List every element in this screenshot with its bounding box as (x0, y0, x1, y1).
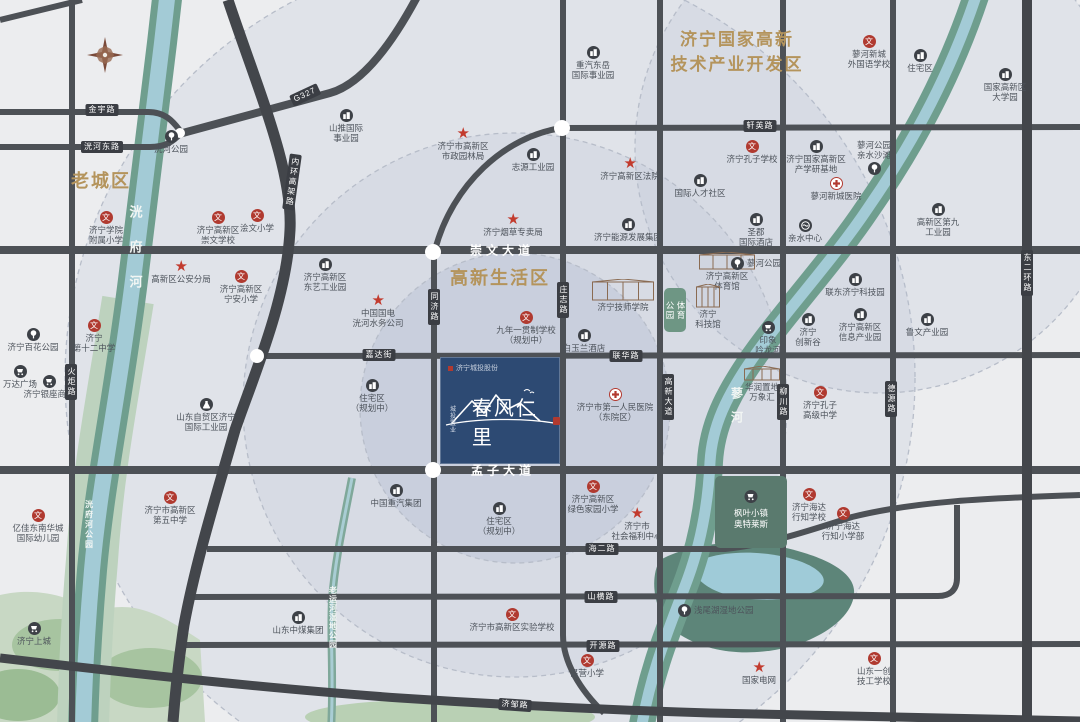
road-badge: 济邹路 (498, 698, 532, 712)
poi-label: 济宁烟草专卖局 (483, 227, 543, 237)
poi-label: 国际人才社区 (674, 188, 725, 198)
road-badge: 开源路 (587, 640, 620, 652)
district-label: 济宁国家高新技术产业开发区 (671, 25, 804, 75)
brand-name: 春风仁里 (472, 392, 549, 450)
school-icon: 文 (212, 211, 225, 224)
poi-label: 济宁第十二中学 (73, 333, 116, 353)
poi-label: 山东自贸区济宁国际工业园 (176, 412, 236, 432)
poi-label: 济宁海达行知学校 (792, 502, 826, 522)
road-badge: 火炬路 (65, 364, 77, 400)
road-badge: 柳川路 (777, 384, 789, 420)
poi-label: 住宅区 (907, 63, 933, 73)
landmark-sketch-icon (696, 284, 720, 308)
poi-label: 蓼河公园亲水沙滩 (857, 140, 891, 160)
poi-label: 万达广场 (3, 379, 37, 389)
poi-label: 国家高新区大学园 (984, 82, 1027, 102)
building-icon (854, 308, 867, 321)
star-icon: ★ (175, 260, 188, 273)
road-badge: 东二环路 (1021, 250, 1033, 296)
brand-seal-icon (553, 417, 560, 425)
poi-label: 鲁文产业园 (906, 327, 949, 337)
river-label: 洸府河 (126, 205, 145, 310)
building-icon (366, 379, 379, 392)
poi-label: 华润置地万象汇 (745, 382, 779, 402)
poi-label: 济宁海达行知小学部 (822, 521, 865, 541)
road-name-label: 崇文大道 (470, 242, 534, 259)
poi-label: 亲水中心 (788, 233, 822, 243)
park-icon (731, 257, 744, 270)
school-icon: 文 (803, 488, 816, 501)
road-kaiyuan (183, 644, 1080, 645)
building-icon (527, 148, 540, 161)
river-label: 老运河湿地公园 (328, 586, 339, 649)
poi-label: 济宁市社会福利中心 (611, 521, 662, 541)
school-icon: 文 (587, 480, 600, 493)
road-badge: 嘉达街 (363, 349, 396, 361)
jining-location-map: 济宁城投股份 城投 置业 · 春风仁里 山推国际事业园洸河公园文济宁学院附属小学… (0, 0, 1080, 722)
poi-label: 济宁学院附属小学 (89, 225, 123, 245)
poi-label: 济宁孔子高级中学 (803, 400, 837, 420)
poi-label: 济宁高新区绿色家园小学 (567, 494, 618, 514)
poi-label: 济宁市第一人民医院（东院区） (577, 402, 654, 422)
green-facility-box: 枫叶小镇奥特莱斯 (715, 476, 787, 548)
star-icon: ★ (631, 507, 644, 520)
plot-tag-label: 济宁城投股份 (456, 363, 498, 373)
poi-label: 蓼河新城外国语学校 (848, 49, 891, 69)
star-icon: ★ (372, 294, 385, 307)
building-icon (694, 174, 707, 187)
building-icon (750, 213, 763, 226)
building-icon (587, 46, 600, 59)
poi-label: 济宁高新区宁安小学 (220, 284, 263, 304)
poi-label: 高新区公安分局 (151, 274, 211, 284)
poi-label: 圣郡国际酒店 (739, 227, 773, 247)
poi-label: 济宁国家高新区产学研基地 (786, 154, 846, 174)
road-badge: 庄志路 (557, 282, 569, 318)
poi-label: 济宁高新区法院 (600, 171, 660, 181)
project-brand-row: 城投 置业 · 春风仁里 (450, 392, 560, 450)
cart-icon (43, 375, 56, 388)
poi-label: 济宁孔子学校 (726, 154, 777, 164)
park-icon (165, 130, 178, 143)
road-xuanying (562, 127, 1080, 128)
road-badge: 联华路 (610, 350, 643, 362)
poi-label: 济宁高新区信息产业园 (839, 322, 882, 342)
poi-label: 白玉兰酒店 (563, 343, 606, 353)
landmark-sketch-icon (744, 366, 780, 381)
poi-label: 印象吟龙河 (755, 335, 781, 355)
center-icon (799, 219, 812, 232)
cart-icon (28, 622, 41, 635)
project-plot-tag: 济宁城投股份 (448, 363, 498, 373)
district-label: 高新生活区 (450, 264, 550, 290)
poi-label: 浍文小学 (240, 223, 274, 233)
road-badge: 同济路 (428, 289, 440, 325)
road-badge: 洸河东路 (81, 141, 123, 153)
road-badge: 德源路 (885, 381, 897, 417)
star-icon: ★ (753, 661, 766, 674)
school-icon: 文 (520, 311, 533, 324)
park-icon (868, 162, 881, 175)
school-icon: 文 (581, 654, 594, 667)
poi-label: 重汽东岳国际事业园 (572, 60, 615, 80)
star-icon: ★ (507, 213, 520, 226)
school-icon: 文 (88, 319, 101, 332)
road-badge: 金宇路 (86, 104, 119, 116)
building-icon (340, 109, 353, 122)
poi-label: 中国国电洸河水务公司 (352, 308, 403, 328)
poi-label: 蓼河新城医院 (810, 191, 861, 201)
river-label: 洸府河公园 (84, 500, 95, 550)
cart-icon (745, 490, 758, 508)
building-icon (578, 329, 591, 342)
school-icon: 文 (837, 507, 850, 520)
poi-label: 济宁高新区东艺工业园 (304, 272, 347, 292)
building-icon (921, 313, 934, 326)
brand-dot: · (465, 416, 468, 427)
plot-marker-icon (448, 366, 453, 371)
building-icon (622, 218, 635, 231)
school-icon: 文 (235, 270, 248, 283)
building-icon (932, 203, 945, 216)
school-icon: 文 (251, 209, 264, 222)
park-icon (678, 604, 691, 617)
poi-label: 山东一创技工学校 (857, 666, 891, 686)
poi-label: 志源工业园 (512, 162, 555, 172)
poi-label: 济宁创新谷 (795, 327, 821, 347)
cart-icon (14, 365, 27, 378)
school-icon: 文 (32, 509, 45, 522)
poi-label: 济宁上城 (17, 636, 51, 646)
poi-label: 济宁市高新区市政园林局 (437, 141, 488, 161)
road-name-label: 孟子大道 (471, 462, 535, 479)
river-label: 蓼河 (729, 387, 746, 435)
poi-label: 中国重汽集团 (370, 498, 421, 508)
hospital-icon (830, 177, 843, 190)
school-icon: 文 (100, 211, 113, 224)
poi-label: 联东济宁科技园 (825, 287, 885, 297)
road-badge: 山横路 (585, 591, 618, 603)
building-icon (802, 313, 815, 326)
road-badge: 海二路 (586, 543, 619, 555)
project-block-chunfeng-renli: 济宁城投股份 城投 置业 · 春风仁里 (440, 357, 560, 464)
road-badge: 高新大道 (662, 374, 674, 420)
road-badge: 轩英路 (744, 120, 777, 132)
star-icon: ★ (457, 127, 470, 140)
poi-label: 济宁市高新区实验学校 (469, 622, 554, 632)
building-icon (849, 273, 862, 286)
school-icon: 文 (746, 140, 759, 153)
park-icon (27, 328, 40, 341)
poi-label: 住宅区（规划中） (478, 516, 521, 536)
poi-label: 济宁百花公园 (7, 342, 58, 352)
building-icon (810, 140, 823, 153)
poi-label: 济宁技师学院 (597, 302, 648, 312)
building-icon (493, 502, 506, 515)
poi-label: 洸河公园 (154, 144, 188, 154)
school-icon: 文 (863, 35, 876, 48)
school-icon: 文 (164, 491, 177, 504)
poi-label: 蓼河公园 (747, 258, 781, 268)
poi-label: 亿佳东南华城国际幼儿园 (12, 523, 63, 543)
poi-label: 高新区第九工业园 (917, 217, 960, 237)
compass-icon (87, 37, 123, 73)
green-box-label: 枫叶小镇奥特莱斯 (734, 508, 768, 530)
poi-label: 九年一贯制学校（规划中） (496, 325, 556, 345)
poi-label: 浅尾湖湿地公园 (694, 605, 754, 615)
building-icon (319, 258, 332, 271)
flask-icon (200, 398, 213, 411)
star-icon: ★ (624, 157, 637, 170)
poi-label: 昌营小学 (570, 668, 604, 678)
school-icon: 文 (506, 608, 519, 621)
poi-label: 山东中煤集团 (272, 625, 323, 635)
cart-icon (762, 321, 775, 334)
poi-label: 济宁市高新区第五中学 (144, 505, 195, 525)
green-box-label: 体育公园 (664, 299, 686, 321)
poi-label: 济宁能源发展集团 (594, 232, 662, 242)
poi-label: 国家电网 (742, 675, 776, 685)
landmark-sketch-icon (592, 279, 654, 301)
road-shanheng (193, 596, 938, 597)
poi-label: 山推国际事业园 (329, 123, 363, 143)
building-icon (390, 484, 403, 497)
school-icon: 文 (814, 386, 827, 399)
green-facility-box: 体育公园 (664, 288, 686, 332)
building-icon (292, 611, 305, 624)
district-label: 老城区 (71, 167, 131, 193)
school-icon: 文 (868, 652, 881, 665)
building-icon (999, 68, 1012, 81)
poi-label: 济宁科技馆 (695, 309, 721, 329)
poi-label: 济宁高新区崇文学校 (197, 225, 240, 245)
hospital-icon (609, 388, 622, 401)
brand-subtext: 城投 置业 (450, 407, 461, 435)
poi-label: 住宅区（规划中） (351, 393, 394, 413)
building-icon (914, 49, 927, 62)
